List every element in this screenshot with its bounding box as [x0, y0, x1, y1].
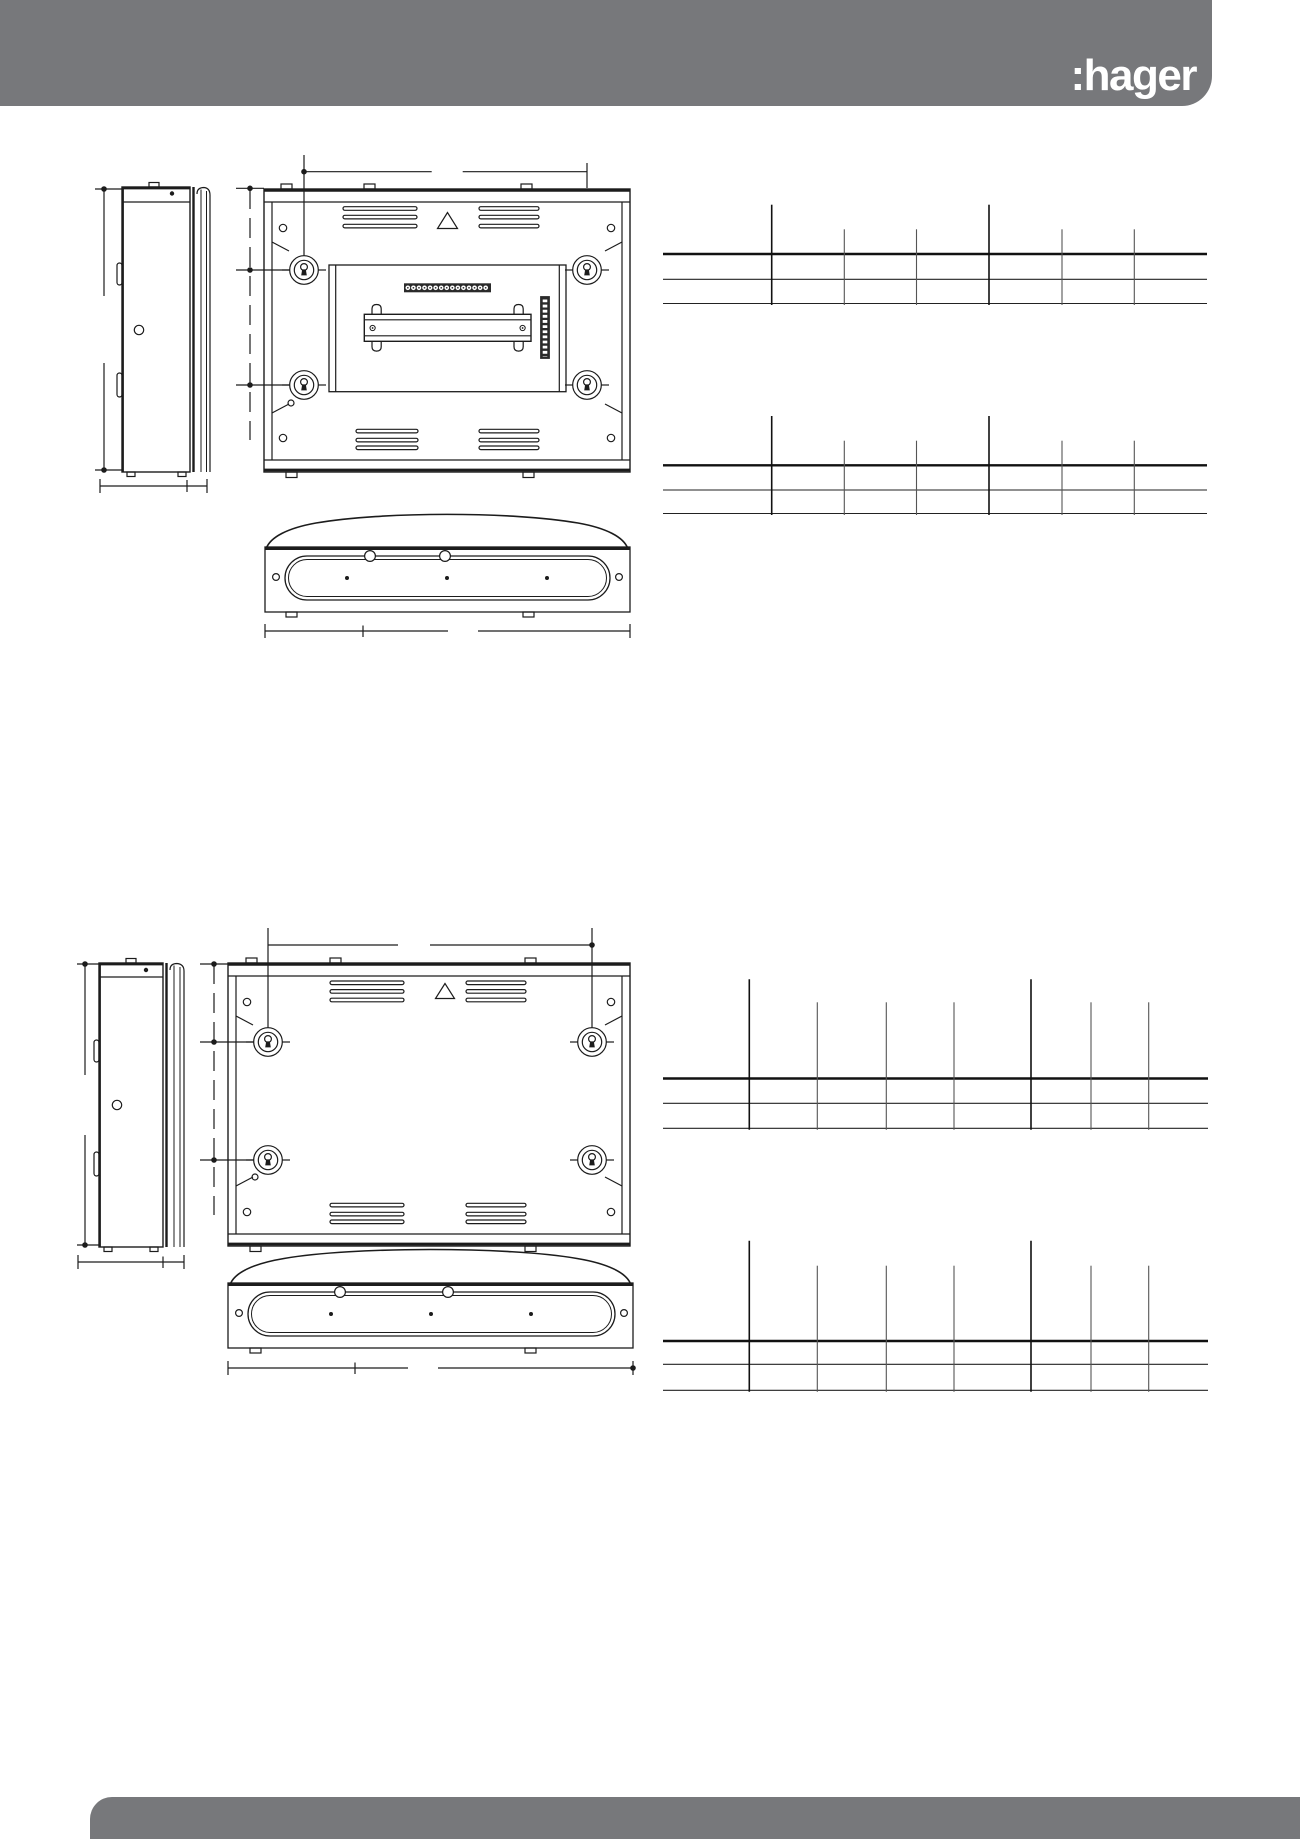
- corner-screw-hole: [607, 1208, 614, 1215]
- keyhole-mount-icon: [565, 371, 609, 400]
- enclosure1-bottom-view: [265, 514, 630, 638]
- width-dimension-line: [265, 624, 630, 638]
- corner-screw-hole: [279, 434, 286, 441]
- side-hole: [112, 1100, 121, 1109]
- slot-screw: [440, 551, 451, 562]
- corner-screw-hole: [607, 998, 614, 1005]
- corner-screw-hole: [243, 998, 250, 1005]
- keyhole-mount-icon: [246, 1028, 290, 1057]
- enclosure2-bottom-view: [228, 1250, 636, 1376]
- slot-screw: [335, 1287, 346, 1298]
- warning-triangle-icon: [436, 984, 455, 999]
- vent-slots-bottom: [330, 1203, 526, 1223]
- keyhole-mount-icon: [570, 1146, 614, 1175]
- door-edge: [167, 963, 185, 1247]
- hinge-bump: [94, 1152, 99, 1176]
- hinge-bump: [94, 1040, 99, 1062]
- dimension-tables: [663, 205, 1208, 1392]
- enclosure1-side-view: [95, 183, 210, 494]
- depth-dimension-line: [78, 1255, 184, 1269]
- hinge-bump: [117, 373, 122, 397]
- keyhole-mount-icon: [282, 371, 326, 400]
- corner-screw-hole: [607, 434, 614, 441]
- footer-bar: [90, 1797, 1300, 1839]
- front-arc: [230, 1250, 631, 1286]
- terminal-strip: [404, 283, 491, 292]
- dimension-table-1: [663, 205, 1207, 305]
- vent-slots-top: [343, 207, 539, 228]
- side-hole: [134, 325, 143, 334]
- depth-dimension-line: [100, 479, 207, 493]
- width-dimension-line: [301, 155, 587, 256]
- enclosure2-side-view: [77, 959, 184, 1270]
- din-rail: [364, 305, 531, 352]
- dimension-table-4: [663, 1241, 1208, 1392]
- vent-slots-bottom: [356, 429, 539, 449]
- dimension-table-3: [663, 979, 1208, 1130]
- door-edge: [194, 187, 211, 472]
- keyhole-mount-icon: [565, 256, 609, 285]
- keyhole-mount-icon: [282, 256, 326, 285]
- width-dimension-line: [228, 1361, 636, 1375]
- keyhole-mount-icon: [570, 1028, 614, 1057]
- technical-drawings: [0, 0, 1300, 1839]
- dimension-table-2: [663, 416, 1207, 515]
- vent-slots-top: [330, 981, 526, 1002]
- width-dimension-line: [268, 928, 595, 1028]
- hinge-bump: [117, 263, 122, 285]
- corner-screw-hole: [607, 224, 614, 231]
- keyhole-mount-icon: [246, 1146, 290, 1175]
- front-arc: [266, 514, 628, 549]
- slot-screw: [443, 1287, 454, 1298]
- connector-strip: [541, 297, 550, 359]
- corner-screw-hole: [243, 1208, 250, 1215]
- fixing-pitch-dimension-line: [236, 186, 290, 441]
- slot-screw: [365, 551, 376, 562]
- height-dimension-line: [95, 186, 122, 473]
- datasheet-page: :hager: [0, 0, 1300, 1839]
- fixing-pitch-dimension-line: [200, 961, 254, 1215]
- earth-hole: [288, 400, 294, 406]
- enclosure1-rear-view: [236, 155, 630, 478]
- corner-screw-hole: [279, 224, 286, 231]
- enclosure2-rear-view: [200, 928, 630, 1252]
- height-dimension-line: [77, 961, 99, 1248]
- warning-triangle-icon: [438, 213, 458, 229]
